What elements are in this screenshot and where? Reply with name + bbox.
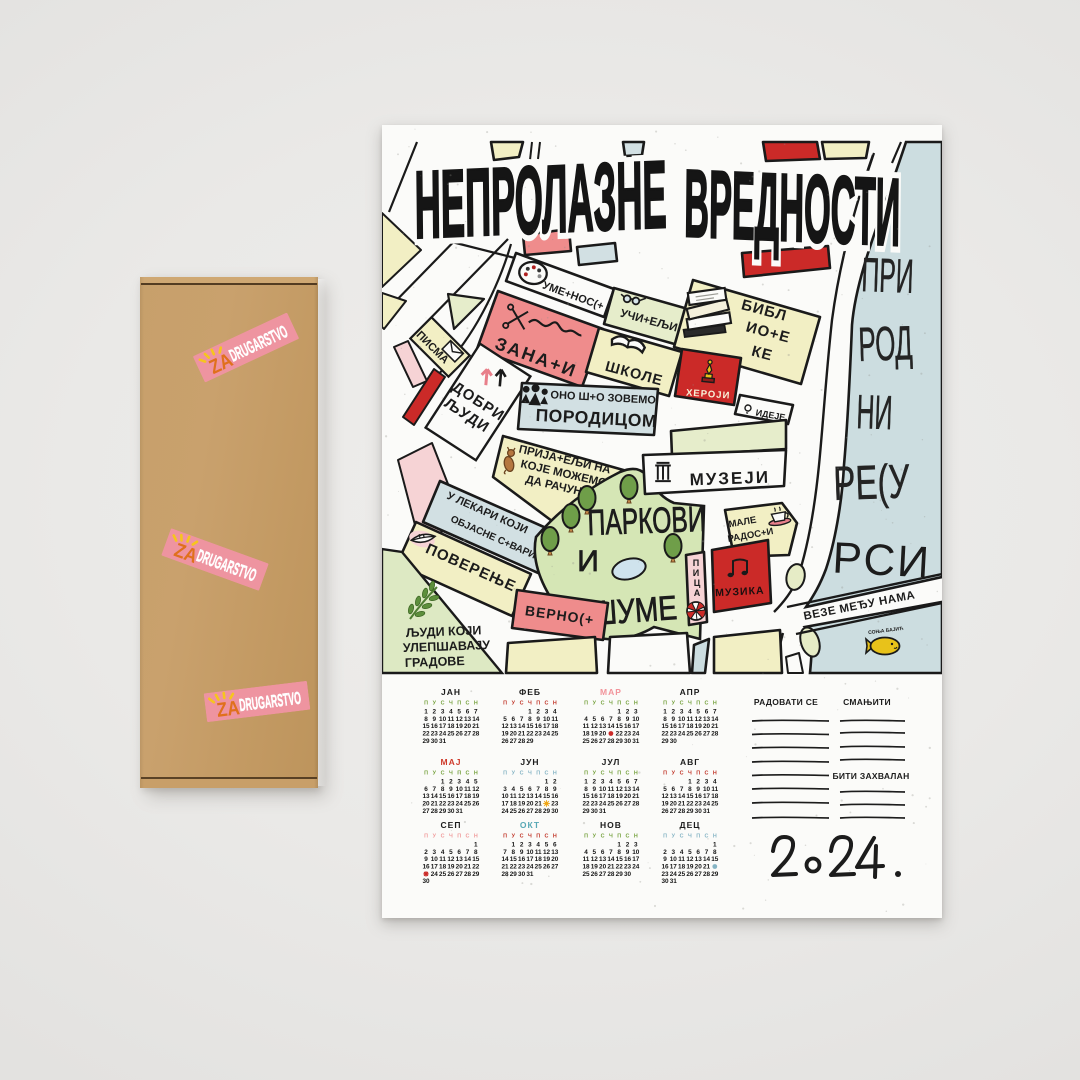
svg-text:30: 30	[518, 871, 526, 878]
svg-text:1: 1	[617, 709, 621, 716]
svg-text:4: 4	[609, 779, 613, 786]
svg-text:29: 29	[422, 738, 430, 745]
svg-text:2: 2	[593, 779, 597, 786]
svg-text:4: 4	[713, 779, 717, 786]
svg-text:С: С	[545, 771, 549, 777]
svg-text:7: 7	[609, 716, 613, 723]
svg-text:13: 13	[551, 849, 559, 856]
svg-text:ВРЕДНОСТИ: ВРЕДНОСТИ	[684, 149, 901, 265]
svg-text:18: 18	[447, 723, 455, 730]
svg-text:СМАЊИТИ: СМАЊИТИ	[843, 697, 891, 707]
svg-text:30: 30	[447, 808, 455, 815]
svg-text:14: 14	[607, 856, 615, 863]
svg-text:11: 11	[583, 856, 590, 863]
svg-text:29: 29	[543, 808, 551, 815]
svg-text:ЈУЛ: ЈУЛ	[602, 757, 621, 767]
svg-text:22: 22	[439, 801, 447, 808]
svg-text:26: 26	[616, 801, 624, 808]
svg-text:23: 23	[535, 731, 543, 738]
svg-text:30: 30	[422, 878, 430, 885]
svg-text:17: 17	[501, 801, 509, 808]
svg-text:20: 20	[464, 723, 472, 730]
svg-text:3: 3	[528, 842, 532, 849]
svg-text:22: 22	[616, 864, 624, 871]
svg-text:15: 15	[686, 793, 694, 800]
svg-text:ЈУН: ЈУН	[520, 757, 539, 767]
svg-text:24: 24	[632, 731, 640, 738]
svg-text:Ч: Ч	[449, 834, 453, 840]
svg-text:25: 25	[439, 871, 447, 878]
svg-text:26: 26	[591, 871, 599, 878]
svg-text:26: 26	[661, 808, 669, 815]
svg-text:25: 25	[551, 731, 559, 738]
svg-text:П: П	[457, 834, 461, 840]
svg-text:15: 15	[472, 856, 480, 863]
svg-text:28: 28	[632, 801, 640, 808]
svg-text:Ч: Ч	[609, 701, 613, 707]
svg-text:6: 6	[626, 779, 630, 786]
svg-text:С: С	[601, 701, 605, 707]
svg-text:П: П	[424, 771, 428, 777]
svg-text:РЕ(У: РЕ(У	[833, 455, 911, 511]
svg-text:П: П	[536, 834, 540, 840]
svg-text:28: 28	[464, 871, 472, 878]
svg-text:30: 30	[695, 808, 703, 815]
svg-text:11: 11	[510, 793, 517, 800]
svg-text:8: 8	[688, 786, 692, 793]
svg-text:8: 8	[512, 849, 516, 856]
svg-text:27: 27	[510, 738, 518, 745]
svg-text:16: 16	[591, 793, 599, 800]
svg-text:17: 17	[526, 856, 534, 863]
svg-text:17: 17	[678, 723, 686, 730]
svg-text:9: 9	[626, 716, 630, 723]
svg-text:2: 2	[626, 709, 630, 716]
svg-text:Ч: Ч	[528, 834, 532, 840]
svg-text:10: 10	[599, 786, 607, 793]
svg-text:9: 9	[626, 849, 630, 856]
svg-text:12: 12	[686, 856, 694, 863]
svg-text:С: С	[466, 701, 470, 707]
svg-text:16: 16	[624, 723, 632, 730]
svg-text:П: П	[424, 701, 428, 707]
svg-text:П: П	[584, 834, 588, 840]
svg-text:16: 16	[695, 793, 703, 800]
svg-text:10: 10	[703, 786, 711, 793]
svg-text:4: 4	[553, 709, 557, 716]
svg-text:25: 25	[607, 801, 615, 808]
svg-text:П: П	[663, 771, 667, 777]
svg-text:ДЕЦ: ДЕЦ	[680, 820, 701, 830]
svg-text:21: 21	[518, 731, 526, 738]
svg-text:25: 25	[678, 871, 686, 878]
svg-text:27: 27	[703, 731, 711, 738]
svg-text:19: 19	[591, 864, 599, 871]
svg-text:АПР: АПР	[680, 687, 701, 697]
svg-text:6: 6	[696, 849, 700, 856]
svg-text:14: 14	[501, 856, 509, 863]
svg-text:Ч: Ч	[528, 701, 532, 707]
svg-text:П: П	[584, 771, 588, 777]
svg-text:25: 25	[582, 871, 590, 878]
svg-text:17: 17	[439, 723, 447, 730]
svg-text:П: П	[503, 771, 507, 777]
svg-text:РСИ: РСИ	[831, 533, 932, 587]
svg-text:19: 19	[695, 723, 703, 730]
svg-text:2: 2	[696, 779, 700, 786]
svg-text:5: 5	[503, 716, 507, 723]
svg-text:14: 14	[518, 723, 526, 730]
svg-text:С: С	[680, 771, 684, 777]
svg-text:11: 11	[439, 856, 446, 863]
svg-text:6: 6	[528, 786, 532, 793]
svg-text:16: 16	[661, 864, 669, 871]
svg-text:22: 22	[510, 864, 518, 871]
svg-text:2: 2	[520, 842, 524, 849]
svg-text:7: 7	[705, 849, 709, 856]
svg-text:9: 9	[433, 716, 437, 723]
svg-text:11: 11	[551, 716, 558, 723]
svg-text:19: 19	[591, 731, 599, 738]
svg-text:1: 1	[545, 779, 549, 786]
svg-text:27: 27	[599, 738, 607, 745]
svg-text:22: 22	[616, 731, 624, 738]
svg-text:5: 5	[474, 779, 478, 786]
svg-text:20: 20	[703, 723, 711, 730]
svg-text:2: 2	[626, 842, 630, 849]
svg-text:20: 20	[551, 856, 559, 863]
svg-text:25: 25	[510, 808, 518, 815]
svg-text:30: 30	[624, 738, 632, 745]
svg-text:6: 6	[672, 786, 676, 793]
svg-text:П: П	[617, 701, 621, 707]
svg-text:3: 3	[545, 709, 549, 716]
svg-text:18: 18	[551, 723, 559, 730]
svg-text:14: 14	[472, 716, 480, 723]
svg-text:1: 1	[713, 842, 717, 849]
svg-text:28: 28	[607, 871, 615, 878]
svg-text:26: 26	[456, 731, 464, 738]
svg-text:22: 22	[422, 731, 430, 738]
svg-text:13: 13	[510, 723, 518, 730]
svg-text:17: 17	[599, 793, 607, 800]
svg-text:14: 14	[703, 856, 711, 863]
svg-text:РОД: РОД	[858, 317, 914, 372]
svg-text:26: 26	[591, 738, 599, 745]
svg-text:17: 17	[632, 723, 640, 730]
svg-text:5: 5	[688, 849, 692, 856]
svg-text:19: 19	[447, 864, 455, 871]
svg-text:19: 19	[456, 723, 464, 730]
svg-text:МУЗЕЈИ: МУЗЕЈИ	[689, 468, 770, 490]
svg-text:БИТИ ЗАХВАЛАН: БИТИ ЗАХВАЛАН	[832, 771, 909, 781]
svg-text:27: 27	[695, 871, 703, 878]
svg-text:30: 30	[661, 878, 669, 885]
svg-text:27: 27	[422, 808, 430, 815]
svg-text:21: 21	[472, 723, 480, 730]
svg-text:29: 29	[526, 738, 534, 745]
svg-text:8: 8	[713, 849, 717, 856]
svg-text:28: 28	[518, 738, 526, 745]
svg-text:7: 7	[466, 849, 470, 856]
svg-text:11: 11	[687, 716, 694, 723]
svg-text:29: 29	[686, 808, 694, 815]
svg-text:С: С	[466, 771, 470, 777]
svg-text:13: 13	[526, 793, 534, 800]
svg-text:С: С	[626, 771, 630, 777]
svg-text:21: 21	[535, 801, 543, 808]
svg-text:16: 16	[535, 723, 543, 730]
svg-text:ПАРКОВИ: ПАРКОВИ	[587, 498, 706, 543]
svg-text:28: 28	[703, 871, 711, 878]
svg-text:11: 11	[583, 723, 590, 730]
svg-text:13: 13	[422, 793, 430, 800]
svg-text:РАДОВАТИ СЕ: РАДОВАТИ СЕ	[754, 697, 818, 707]
svg-text:С: С	[520, 771, 524, 777]
svg-text:21: 21	[464, 864, 472, 871]
svg-text:10: 10	[431, 856, 439, 863]
svg-text:Н: Н	[713, 834, 717, 840]
svg-text:29: 29	[510, 871, 518, 878]
svg-text:9: 9	[424, 856, 428, 863]
svg-text:8: 8	[528, 716, 532, 723]
svg-text:31: 31	[670, 878, 678, 885]
svg-text:10: 10	[439, 716, 447, 723]
svg-text:С: С	[626, 701, 630, 707]
svg-text:15: 15	[526, 723, 534, 730]
svg-text:18: 18	[582, 731, 590, 738]
svg-text:ФЕБ: ФЕБ	[519, 687, 541, 697]
svg-text:3: 3	[672, 849, 676, 856]
svg-text:26: 26	[447, 871, 455, 878]
svg-text:14: 14	[535, 793, 543, 800]
svg-text:Ч: Ч	[528, 771, 532, 777]
svg-text:14: 14	[431, 793, 439, 800]
svg-text:24: 24	[678, 731, 686, 738]
svg-text:19: 19	[472, 793, 480, 800]
svg-text:25: 25	[711, 801, 719, 808]
svg-text:18: 18	[686, 723, 694, 730]
svg-text:27: 27	[599, 871, 607, 878]
svg-text:18: 18	[535, 856, 543, 863]
svg-text:Н: Н	[713, 701, 717, 707]
svg-text:Ч: Ч	[688, 834, 692, 840]
svg-text:Н: Н	[634, 701, 638, 707]
svg-text:С: С	[626, 834, 630, 840]
svg-text:25: 25	[686, 731, 694, 738]
svg-text:20: 20	[526, 801, 534, 808]
svg-text:20: 20	[456, 864, 464, 871]
svg-text:19: 19	[518, 801, 526, 808]
svg-text:24: 24	[703, 801, 711, 808]
svg-text:10: 10	[456, 786, 464, 793]
svg-text:30: 30	[591, 808, 599, 815]
svg-text:11: 11	[608, 786, 615, 793]
svg-text:13: 13	[695, 856, 703, 863]
svg-text:7: 7	[503, 849, 507, 856]
svg-text:16: 16	[422, 864, 430, 871]
svg-text:27: 27	[456, 871, 464, 878]
svg-text:5: 5	[663, 786, 667, 793]
svg-text:19: 19	[501, 731, 509, 738]
svg-text:8: 8	[584, 786, 588, 793]
svg-text:22: 22	[661, 731, 669, 738]
svg-text:И: И	[693, 568, 699, 578]
svg-text:АВГ: АВГ	[680, 757, 700, 767]
svg-text:С: С	[680, 834, 684, 840]
svg-text:4: 4	[584, 849, 588, 856]
svg-text:28: 28	[678, 808, 686, 815]
svg-text:16: 16	[624, 856, 632, 863]
svg-text:МАЈ: МАЈ	[441, 757, 462, 767]
svg-text:7: 7	[713, 709, 717, 716]
svg-text:28: 28	[431, 808, 439, 815]
svg-text:27: 27	[670, 808, 678, 815]
svg-text:18: 18	[582, 864, 590, 871]
svg-text:П: П	[503, 701, 507, 707]
svg-text:12: 12	[695, 716, 703, 723]
svg-text:5: 5	[520, 786, 524, 793]
svg-text:3: 3	[705, 779, 709, 786]
svg-text:9: 9	[696, 786, 700, 793]
svg-text:22: 22	[526, 731, 534, 738]
svg-text:17: 17	[703, 793, 711, 800]
svg-text:23: 23	[661, 871, 669, 878]
svg-text:5: 5	[617, 779, 621, 786]
svg-text:12: 12	[501, 723, 509, 730]
svg-text:ZA: ZA	[215, 697, 241, 722]
svg-text:8: 8	[663, 716, 667, 723]
svg-text:22: 22	[686, 801, 694, 808]
svg-text:24: 24	[456, 801, 464, 808]
svg-text:С: С	[545, 834, 549, 840]
svg-text:15: 15	[582, 793, 590, 800]
svg-text:27: 27	[551, 864, 559, 871]
svg-text:30: 30	[551, 808, 559, 815]
svg-text:19: 19	[661, 801, 669, 808]
svg-text:1: 1	[663, 709, 667, 716]
svg-text:15: 15	[661, 723, 669, 730]
svg-text:4: 4	[584, 716, 588, 723]
svg-text:28: 28	[535, 808, 543, 815]
svg-text:23: 23	[670, 731, 678, 738]
svg-text:13: 13	[624, 786, 632, 793]
svg-text:10: 10	[632, 716, 640, 723]
svg-text:24: 24	[501, 808, 509, 815]
svg-text:15: 15	[543, 793, 551, 800]
svg-text:29: 29	[439, 808, 447, 815]
svg-text:19: 19	[543, 856, 551, 863]
svg-text:7: 7	[536, 786, 540, 793]
svg-text:П: П	[536, 701, 540, 707]
svg-text:Н: Н	[713, 771, 717, 777]
svg-text:26: 26	[686, 871, 694, 878]
svg-text:31: 31	[456, 808, 464, 815]
svg-text:26: 26	[543, 864, 551, 871]
svg-text:21: 21	[431, 801, 439, 808]
svg-text:12: 12	[518, 793, 526, 800]
svg-text:ЉУДИ КОЈИ: ЉУДИ КОЈИ	[406, 623, 482, 640]
svg-text:7: 7	[433, 786, 437, 793]
svg-text:4: 4	[536, 842, 540, 849]
svg-text:17: 17	[456, 793, 464, 800]
svg-text:20: 20	[422, 801, 430, 808]
svg-text:С: С	[705, 701, 709, 707]
svg-text:С: С	[520, 834, 524, 840]
svg-text:Н: Н	[553, 834, 557, 840]
svg-text:11: 11	[678, 856, 685, 863]
svg-text:15: 15	[439, 793, 447, 800]
svg-text:25: 25	[464, 801, 472, 808]
svg-text:23: 23	[624, 864, 632, 871]
svg-text:10: 10	[526, 849, 534, 856]
svg-text:10: 10	[670, 856, 678, 863]
svg-text:И: И	[577, 545, 599, 578]
svg-text:18: 18	[439, 864, 447, 871]
svg-text:31: 31	[632, 738, 640, 745]
svg-text:13: 13	[703, 716, 711, 723]
svg-text:19: 19	[686, 864, 694, 871]
svg-text:П: П	[457, 701, 461, 707]
svg-text:2: 2	[672, 709, 676, 716]
svg-text:17: 17	[431, 864, 439, 871]
svg-text:3: 3	[601, 779, 605, 786]
svg-text:1: 1	[474, 842, 478, 849]
svg-text:6: 6	[601, 716, 605, 723]
svg-text:Н: Н	[474, 834, 478, 840]
svg-text:П: П	[617, 771, 621, 777]
svg-text:12: 12	[456, 716, 464, 723]
svg-text:21: 21	[501, 864, 509, 871]
svg-text:5: 5	[457, 709, 461, 716]
svg-text:6: 6	[553, 842, 557, 849]
svg-text:5: 5	[449, 849, 453, 856]
svg-text:1: 1	[688, 779, 692, 786]
svg-text:14: 14	[464, 856, 472, 863]
svg-text:4: 4	[466, 779, 470, 786]
svg-text:23: 23	[695, 801, 703, 808]
svg-text:ОКТ: ОКТ	[520, 820, 540, 830]
svg-text:3: 3	[433, 849, 437, 856]
svg-text:3: 3	[441, 709, 445, 716]
svg-text:НОВ: НОВ	[600, 820, 622, 830]
svg-text:6: 6	[512, 716, 516, 723]
svg-text:29: 29	[711, 871, 719, 878]
svg-text:28: 28	[607, 738, 615, 745]
svg-text:Ч: Ч	[688, 701, 692, 707]
svg-text:9: 9	[553, 786, 557, 793]
svg-text:28: 28	[711, 731, 719, 738]
svg-text:20: 20	[599, 731, 607, 738]
svg-text:С: С	[441, 701, 445, 707]
svg-text:16: 16	[518, 856, 526, 863]
svg-text:12: 12	[661, 793, 669, 800]
svg-text:7: 7	[680, 786, 684, 793]
svg-text:8: 8	[617, 716, 621, 723]
svg-text:15: 15	[616, 723, 624, 730]
svg-text:13: 13	[599, 723, 607, 730]
svg-text:5: 5	[545, 842, 549, 849]
svg-text:4: 4	[512, 786, 516, 793]
svg-text:8: 8	[424, 716, 428, 723]
svg-text:13: 13	[670, 793, 678, 800]
svg-text:П: П	[663, 834, 667, 840]
svg-text:7: 7	[634, 779, 638, 786]
svg-text:16: 16	[670, 723, 678, 730]
svg-text:П: П	[503, 834, 507, 840]
svg-text:21: 21	[711, 723, 719, 730]
svg-text:3: 3	[634, 842, 638, 849]
